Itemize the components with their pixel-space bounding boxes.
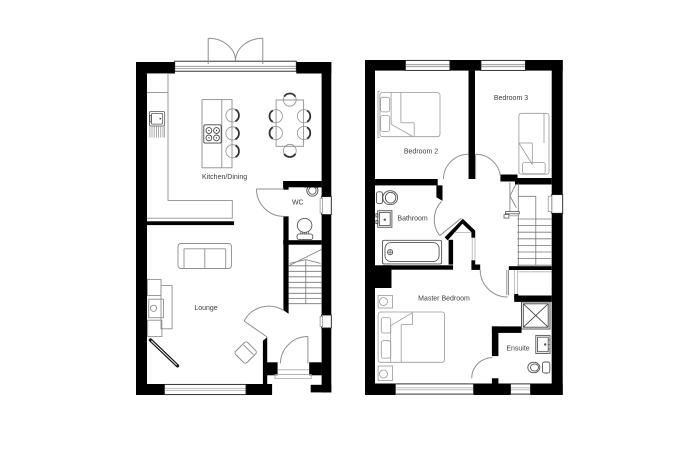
svg-text:Bathroom: Bathroom — [397, 216, 428, 223]
svg-text:Bedroom 2: Bedroom 2 — [404, 149, 438, 156]
svg-text:Kitchen/Dining: Kitchen/Dining — [202, 174, 247, 181]
svg-text:Ensuite: Ensuite — [506, 346, 529, 353]
svg-text:WC: WC — [292, 200, 304, 207]
svg-text:Master Bedroom: Master Bedroom — [418, 296, 470, 303]
svg-text:Lounge: Lounge — [194, 305, 217, 312]
svg-text:Bedroom 3: Bedroom 3 — [494, 95, 528, 102]
